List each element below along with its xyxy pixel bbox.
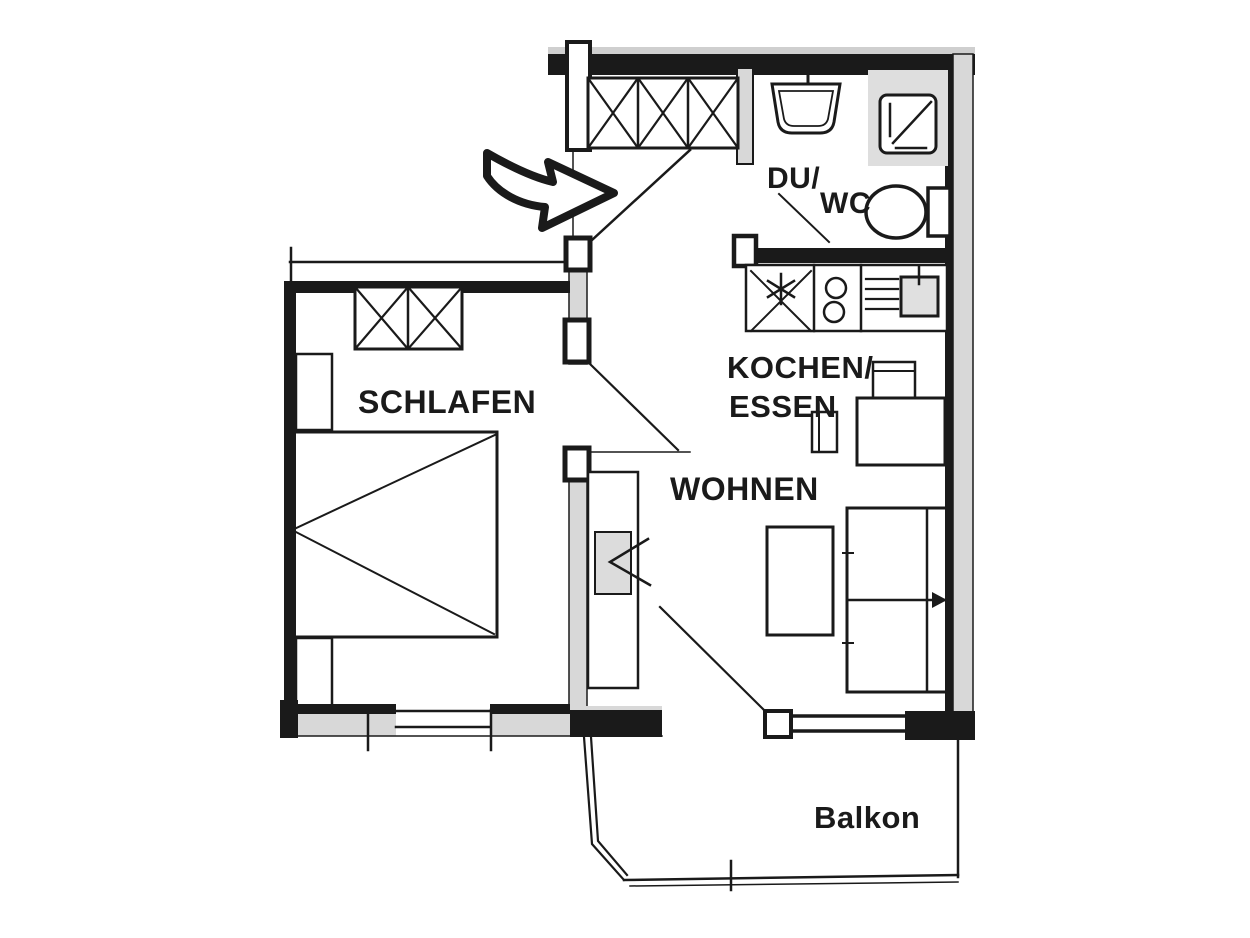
tv-unit bbox=[588, 472, 650, 688]
wall-middle-lower bbox=[569, 448, 587, 710]
label-wc: WC bbox=[820, 187, 871, 220]
bed bbox=[292, 432, 497, 637]
wall-right-body bbox=[953, 54, 973, 738]
bottom-walls bbox=[280, 700, 975, 750]
bedroom-door bbox=[589, 363, 690, 452]
dining-chair-top bbox=[873, 362, 915, 398]
jamb-bath bbox=[734, 236, 756, 266]
balcony-edge-outer bbox=[584, 737, 624, 880]
balcony-railing-inner bbox=[630, 882, 958, 886]
label-balkon: Balkon bbox=[814, 800, 920, 835]
jamb-balcony-door bbox=[765, 711, 791, 737]
nightstand-top bbox=[296, 354, 332, 430]
bedroom-wardrobe bbox=[355, 287, 462, 349]
dining-table bbox=[857, 398, 945, 465]
label-essen: ESSEN bbox=[729, 389, 837, 424]
jamb-bedroom-top bbox=[565, 320, 589, 362]
balcony-railing-outer bbox=[624, 875, 958, 880]
label-kochen: KOCHEN/ bbox=[727, 350, 873, 385]
wall-top-shadow bbox=[548, 47, 975, 54]
wall-bath-kitchen bbox=[734, 248, 948, 263]
kitchen-counter bbox=[746, 265, 947, 331]
hall-wardrobe bbox=[588, 78, 738, 148]
jamb-entrance-bottom bbox=[566, 238, 590, 270]
floor-plan-canvas: SCHLAFEN WOHNEN KOCHEN/ ESSEN DU/ WC Bal… bbox=[0, 0, 1250, 938]
balcony-door-leaf bbox=[660, 607, 764, 710]
wall-bedroom-left bbox=[284, 281, 296, 711]
nightstand-bottom bbox=[296, 638, 332, 706]
label-schlafen: SCHLAFEN bbox=[358, 384, 536, 420]
floor-plan-drawing: SCHLAFEN WOHNEN KOCHEN/ ESSEN DU/ WC Bal… bbox=[0, 0, 1250, 938]
balcony-edge-inner bbox=[591, 737, 627, 875]
sofa-foldout-arrow-icon bbox=[912, 592, 947, 608]
wall-bottom-seg2 bbox=[490, 704, 570, 714]
shower-icon bbox=[868, 70, 948, 166]
wall-bottom-right bbox=[905, 711, 975, 740]
jamb-bedroom-bottom bbox=[565, 448, 589, 480]
label-du: DU/ bbox=[767, 162, 820, 195]
sofa bbox=[843, 508, 948, 692]
entrance-arrow-icon bbox=[487, 153, 614, 228]
toilet-icon bbox=[866, 186, 950, 238]
label-wohnen: WOHNEN bbox=[670, 471, 819, 507]
wall-bottom-living bbox=[570, 710, 662, 737]
coffee-table bbox=[767, 527, 833, 635]
